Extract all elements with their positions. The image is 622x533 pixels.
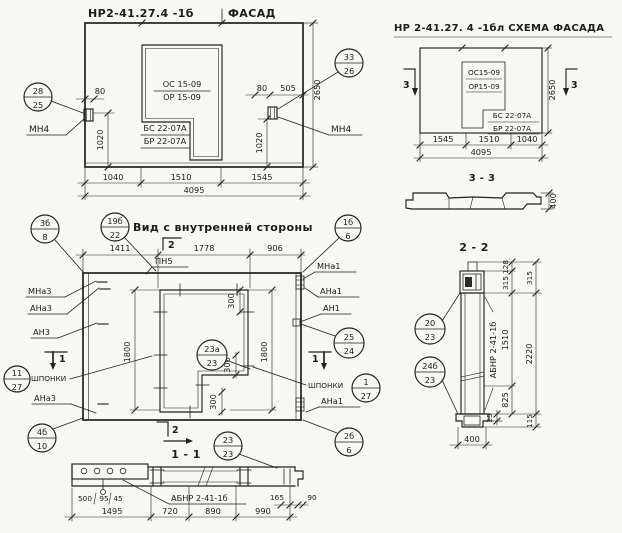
dim-1800-left: 1800 (122, 342, 132, 363)
callout-bottom: 22 (110, 230, 120, 240)
callout-25-24: 25 24 (301, 324, 364, 358)
callout-top: 1 (363, 377, 368, 387)
section-2-2-label: АБНР 2-41-1б (488, 322, 498, 379)
dim-315-outer: 315 (525, 271, 534, 285)
dim-400: 400 (548, 193, 558, 209)
dim-315-inner: 315 (501, 276, 510, 290)
callout-4b-10: 4б 10 (28, 418, 83, 452)
schema-drawing: НР 2-41.27. 4 -1бл СХЕМА ФАСАДА ОС15-09 … (394, 22, 612, 162)
facade-dims: 80 1020 80 505 1020 2650 1040 1510 1545 … (76, 20, 322, 200)
dim-505: 505 (280, 83, 296, 93)
section-3-3: 3 - 3 400 (406, 173, 558, 212)
callout-bottom: 26 (344, 66, 354, 76)
callout-bottom: 10 (37, 441, 47, 451)
dim-1020-right: 1020 (254, 133, 264, 154)
callout-24b-23: 24б 23 (415, 357, 458, 414)
section-mark-2-bottom: 2 (157, 422, 193, 444)
section-2-2-body (461, 293, 484, 414)
dim-1510: 1510 (479, 134, 500, 144)
facade-title: ФАСАД (228, 7, 276, 20)
schema-mark-os: ОС15-09 (468, 68, 500, 77)
schema-mark-bs: БС 22-07А (493, 111, 532, 120)
dim-115: 115 (525, 414, 534, 428)
dim-4095: 4095 (471, 147, 492, 157)
label-mna3: МНа3 (28, 286, 51, 296)
dim-25: 25 (485, 413, 494, 422)
label-an3: АН3 (33, 327, 50, 337)
dim-2650: 2650 (547, 80, 557, 101)
dim-1545: 1545 (433, 134, 454, 144)
drawing-sheet: НР2-41.27.4 -1б ФАСАД ОС 15-09 ОР 15-09 … (0, 0, 622, 533)
dim-1510: 1510 (500, 330, 510, 351)
facade-window-mark-bs: БС 22-07А (143, 123, 187, 133)
callout-bottom: 23 (425, 375, 435, 385)
callout-top: 24б (422, 361, 437, 371)
dim-1411: 1411 (110, 243, 131, 253)
callout-23-23: 23 23 (214, 432, 277, 468)
callout-2b-6: 2б 6 (303, 420, 363, 456)
callout-23a-23: 23а 23 (197, 340, 250, 370)
label-ana3-bottom: АНа3 (34, 393, 56, 403)
facade-window-mark-os: ОС 15-09 (163, 79, 202, 89)
dim-500: 500 (78, 494, 92, 503)
callout-bottom: 8 (42, 232, 47, 242)
section-3-3-profile (406, 193, 541, 209)
callout-bottom: 24 (344, 346, 354, 356)
callout-28-25: 28 25 (24, 83, 83, 113)
section-mark-1-right: 1 (309, 352, 331, 370)
left-rib-marks (97, 282, 110, 404)
section-mark-label: 2 (172, 425, 179, 436)
inner-view-drawing: 19б 22 Вид с внутренней стороны 1411 177… (4, 213, 380, 468)
dim-80-right: 80 (257, 83, 267, 93)
section-mark-3-right: 3 (563, 69, 578, 96)
dim-400: 400 (464, 434, 480, 444)
dim-80-left: 80 (95, 86, 105, 96)
dim-4095: 4095 (184, 185, 205, 195)
callout-bottom: 23 (223, 449, 233, 459)
callout-11-27: 11 27 (4, 366, 30, 392)
callout-top: 25 (344, 332, 354, 342)
callout-top: 33 (344, 52, 354, 62)
label-ana1-bottom: АНа1 (321, 396, 343, 406)
label-pn5: ПН5 (155, 256, 173, 266)
callout-top: 2б (344, 431, 354, 441)
inner-view-title: Вид с внутренней стороны (133, 221, 313, 234)
dim-165: 165 (270, 493, 284, 502)
callout-bottom: 25 (33, 100, 43, 110)
inner-view-top-dims: 1411 1778 906 (76, 243, 305, 288)
section-1-1-title: 1 - 1 (171, 448, 201, 461)
dim-1020-left: 1020 (95, 130, 105, 151)
callout-top: 1б (343, 217, 353, 227)
callout-top: 28 (33, 86, 43, 96)
section-3-3-title: 3 - 3 (469, 173, 496, 184)
facade-window-mark-br: БР 22-07А (144, 136, 187, 146)
dim-1800-right: 1800 (259, 342, 269, 363)
label-shponki-left: ШПОНКИ (31, 374, 66, 383)
callout-bottom: 6 (346, 445, 351, 455)
label-ana1: АНа1 (320, 286, 342, 296)
callout-top: 23 (223, 435, 233, 445)
callout-bottom: 23 (425, 332, 435, 342)
label-an1: АН1 (323, 303, 340, 313)
facade-code: НР2-41.27.4 -1б (88, 7, 194, 20)
callout-3b-8: 3б 8 (31, 215, 84, 273)
section-mark-2-top: 2 (163, 238, 181, 251)
section-mark-label: 1 (312, 354, 319, 365)
callout-bottom: 27 (12, 382, 22, 392)
dim-95: 95 (99, 494, 108, 503)
label-shponki-right: ШПОНКИ (308, 381, 343, 390)
section-1-1: 1 - 1 АБНР 2-41-1б 500 95 45 165 90 1495… (65, 448, 317, 521)
dim-825: 825 (500, 392, 510, 408)
label-mn4-left: МН4 (29, 125, 50, 135)
dim-2220: 2220 (524, 344, 534, 365)
callout-top: 3б (40, 218, 50, 228)
callout-top: 19б (107, 216, 122, 226)
callout-20-23: 20 23 (415, 293, 460, 344)
section-mark-label: 2 (168, 240, 175, 251)
callout-bottom: 23 (207, 358, 217, 368)
dim-906: 906 (267, 243, 283, 253)
section-1-1-label: АБНР 2-41-1б (171, 493, 228, 503)
label-mna1: МНа1 (317, 261, 340, 271)
dim-1495: 1495 (102, 506, 123, 516)
dim-300-c: 300 (208, 394, 218, 410)
dim-45: 45 (113, 494, 122, 503)
dim-128: 128 (501, 260, 510, 274)
schema-title: НР 2-41.27. 4 -1бл СХЕМА ФАСАДА (394, 22, 604, 34)
section-2-2: 2 - 2 АБНР 2-41-1б 20 23 24б 23 128 315 … (415, 241, 541, 449)
facade-drawing: НР2-41.27.4 -1б ФАСАД ОС 15-09 ОР 15-09 … (24, 7, 363, 200)
label-mn4-right: МН4 (331, 125, 352, 135)
callout-1-27: 1 27 (352, 374, 380, 402)
label-ana3: АНа3 (30, 303, 52, 313)
dim-990: 990 (255, 506, 271, 516)
section-2-2-title: 2 - 2 (459, 241, 489, 254)
section-mark-label: 1 (59, 354, 66, 365)
section-mark-1-left: 1 (45, 352, 67, 370)
dim-300-a: 300 (226, 293, 236, 309)
callout-bottom: 27 (361, 391, 371, 401)
dim-1510: 1510 (171, 172, 192, 182)
facade-window-mark-or: ОР 15-09 (163, 92, 201, 102)
dim-720: 720 (162, 506, 178, 516)
callout-top: 4б (37, 427, 47, 437)
callout-top: 20 (425, 318, 435, 328)
dim-1545: 1545 (252, 172, 273, 182)
schema-mark-or: ОР15-09 (468, 82, 500, 91)
drawing-canvas: НР2-41.27.4 -1б ФАСАД ОС 15-09 ОР 15-09 … (0, 0, 622, 533)
callout-top: 23а (204, 344, 219, 354)
dim-1040: 1040 (517, 134, 538, 144)
dim-1040: 1040 (103, 172, 124, 182)
dim-890: 890 (205, 506, 221, 516)
callout-bottom: 6 (345, 231, 350, 241)
dim-1778: 1778 (194, 243, 215, 253)
section-mark-label: 3 (403, 80, 410, 91)
section-mark-label: 3 (571, 80, 578, 91)
section-mark-3-left: 3 (403, 69, 418, 96)
schema-mark-br: БР 22-07А (493, 124, 531, 133)
callout-top: 11 (12, 368, 22, 378)
dim-90: 90 (307, 493, 317, 502)
